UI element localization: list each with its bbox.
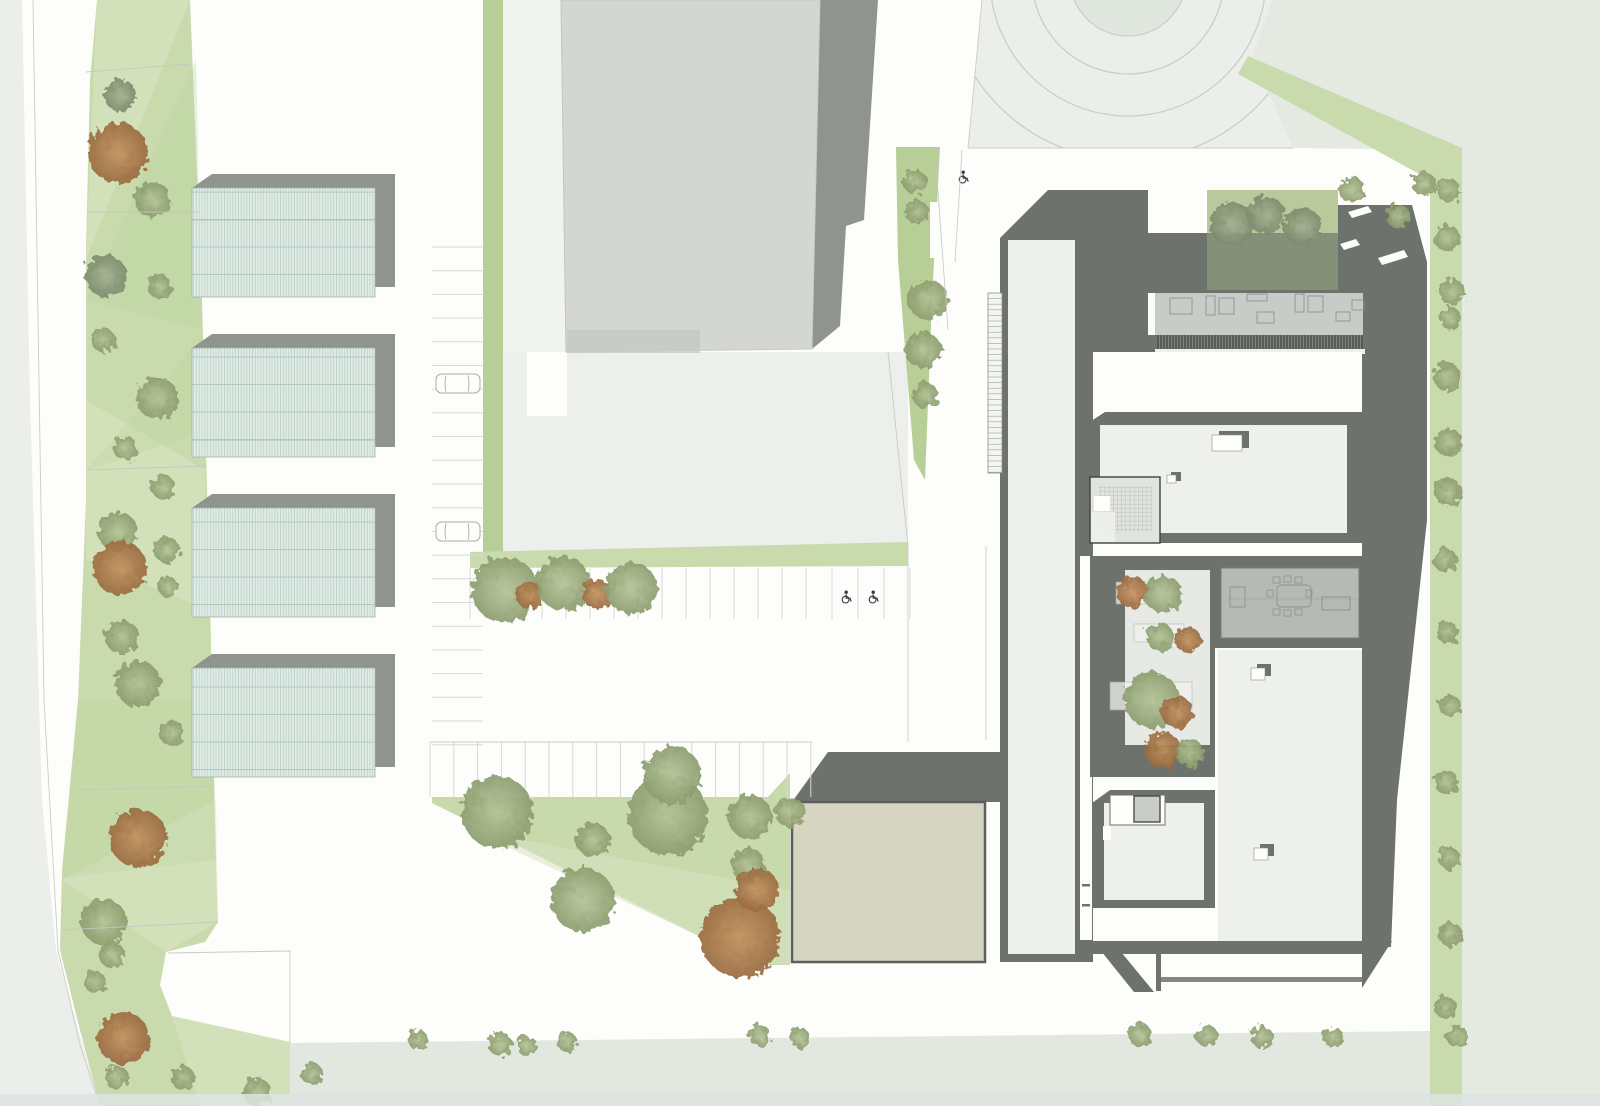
tree xyxy=(109,809,167,867)
hall-annex-shadow xyxy=(792,752,1002,802)
tree xyxy=(1284,208,1322,246)
tree xyxy=(1412,172,1436,196)
tree xyxy=(1439,695,1461,717)
existing-building xyxy=(561,0,820,352)
hall-annex xyxy=(792,802,985,962)
tree xyxy=(1434,225,1460,251)
hall-roof xyxy=(192,348,375,457)
tree xyxy=(1434,770,1458,794)
tree xyxy=(576,823,610,857)
tree xyxy=(1439,279,1465,305)
roof-object xyxy=(1254,848,1268,860)
wall-tick xyxy=(1082,904,1090,907)
tree xyxy=(908,280,948,320)
tree xyxy=(159,720,185,746)
tree xyxy=(105,620,139,654)
stair-opening xyxy=(1094,496,1110,511)
map-edge-band xyxy=(0,1094,1600,1106)
tree xyxy=(1247,196,1285,234)
car-body xyxy=(436,522,480,541)
icon-head xyxy=(845,591,848,594)
tree xyxy=(91,328,115,352)
ground-shadow-line xyxy=(1160,977,1365,982)
tree xyxy=(1438,847,1460,869)
tree xyxy=(97,1012,149,1064)
sw-wall-bar xyxy=(1156,947,1161,991)
tree xyxy=(85,255,127,297)
tree xyxy=(148,275,172,299)
tree xyxy=(905,332,941,368)
hall-roof xyxy=(192,188,375,297)
roof-object xyxy=(1212,435,1242,451)
tree xyxy=(551,868,615,932)
green-verge-mid xyxy=(483,0,503,565)
tree xyxy=(605,562,657,614)
tree xyxy=(557,1032,577,1052)
walkway-west xyxy=(503,0,566,352)
tree xyxy=(301,1063,323,1085)
tree xyxy=(136,377,178,419)
tree xyxy=(1438,922,1462,946)
tree xyxy=(912,382,938,408)
wall-tick xyxy=(1082,884,1090,887)
stair-landing xyxy=(1091,512,1115,542)
tree xyxy=(1434,478,1462,506)
tree xyxy=(1210,202,1254,246)
path-north xyxy=(1148,190,1207,233)
tree xyxy=(1339,177,1365,203)
tree xyxy=(1175,627,1201,653)
tree xyxy=(99,942,125,968)
tree xyxy=(84,971,106,993)
tree xyxy=(154,537,180,563)
tree xyxy=(1433,363,1461,391)
tree xyxy=(461,776,533,848)
tree xyxy=(1436,178,1460,202)
deck-edge xyxy=(1155,349,1365,354)
tree xyxy=(790,1028,810,1048)
site-plan-page xyxy=(0,0,1600,1106)
bldg-bar-roof xyxy=(1008,240,1075,954)
ramp-white xyxy=(527,352,567,416)
roof-object xyxy=(1251,668,1265,680)
tree xyxy=(1446,1025,1468,1047)
south-wall xyxy=(1093,941,1363,954)
tree xyxy=(643,746,701,804)
icon-head xyxy=(872,591,875,594)
tree xyxy=(1116,576,1148,608)
pergola-louvers xyxy=(1157,335,1363,349)
deck-sliver xyxy=(1148,293,1155,335)
tree xyxy=(905,200,929,224)
tree xyxy=(1439,307,1461,329)
tree xyxy=(93,541,147,595)
tree xyxy=(903,170,927,194)
tree xyxy=(88,123,148,183)
elevator-cab xyxy=(1134,796,1160,822)
wall-tick xyxy=(1095,910,1105,918)
site-plan-drawing xyxy=(0,0,1600,1106)
canopy-walk xyxy=(988,293,1002,473)
existing-building-step xyxy=(567,330,700,353)
tree xyxy=(113,436,137,460)
tree xyxy=(115,661,161,707)
tree xyxy=(1161,696,1193,728)
roof-object xyxy=(1167,475,1176,483)
tree xyxy=(1251,1026,1273,1048)
tree xyxy=(749,1025,771,1047)
tree xyxy=(1176,739,1204,767)
car-icon xyxy=(436,522,480,541)
wall-tick xyxy=(1153,910,1163,918)
tree xyxy=(81,899,127,945)
car-icon xyxy=(436,374,480,393)
tree xyxy=(1196,1025,1218,1047)
tree xyxy=(536,556,590,610)
tree xyxy=(517,1036,537,1056)
tree xyxy=(1146,623,1174,651)
car-body xyxy=(436,374,480,393)
tree xyxy=(104,79,136,111)
tree xyxy=(105,1066,129,1090)
bldg-se-roof xyxy=(1218,650,1362,947)
tree xyxy=(158,577,178,597)
tree xyxy=(1144,575,1182,613)
tree xyxy=(408,1030,428,1050)
tree xyxy=(1386,204,1410,228)
wall-chip xyxy=(1103,826,1111,840)
hall-roof xyxy=(192,508,375,617)
tree xyxy=(728,795,772,839)
tree xyxy=(1434,428,1462,456)
tree xyxy=(488,1032,512,1056)
icon-head xyxy=(962,171,965,174)
tree xyxy=(1435,997,1457,1019)
tree xyxy=(171,1066,195,1090)
tree xyxy=(1128,1023,1152,1047)
hall-roof xyxy=(192,668,375,777)
tree xyxy=(1436,621,1458,643)
terrace-room xyxy=(1221,568,1359,638)
tree xyxy=(135,182,171,218)
tree xyxy=(1323,1027,1343,1047)
tree xyxy=(775,797,805,827)
tree xyxy=(735,868,779,912)
tree xyxy=(1433,548,1457,572)
tree xyxy=(1145,732,1181,768)
tree xyxy=(151,475,175,499)
